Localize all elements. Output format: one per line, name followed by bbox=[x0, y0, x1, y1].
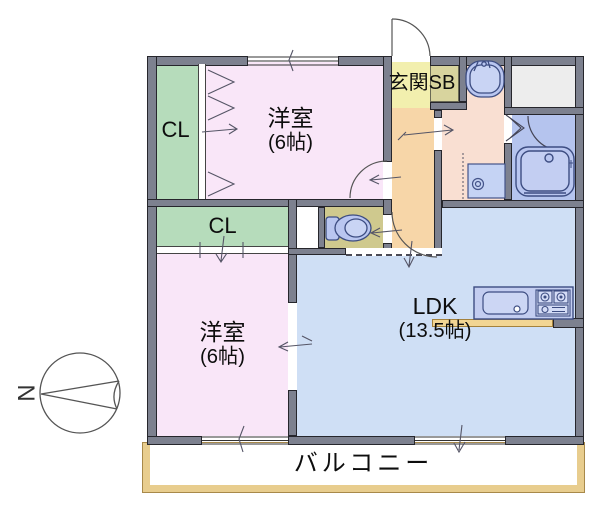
storage-box bbox=[512, 62, 575, 107]
compass-north-label: N bbox=[12, 384, 39, 401]
toilet-room-floor bbox=[318, 207, 383, 250]
bedroom2-ldk-door bbox=[288, 303, 297, 390]
niche-space bbox=[297, 207, 318, 250]
washroom-door-opening bbox=[434, 118, 442, 150]
wall-bottom-mid bbox=[288, 436, 415, 445]
wall-bedroom1-bottom bbox=[147, 199, 392, 207]
bedroom-bottom-size: (6帖) bbox=[157, 346, 288, 369]
label-closet-top: CL bbox=[153, 118, 198, 143]
wall-bedroom2-ldk-b bbox=[288, 390, 297, 436]
toilet-door-opening bbox=[383, 215, 392, 243]
entrance-door bbox=[392, 19, 430, 56]
label-balcony: バルコニー bbox=[143, 451, 584, 478]
ldk-name: LDK bbox=[345, 294, 525, 320]
wall-left bbox=[147, 56, 157, 445]
label-entrance: 玄関SB bbox=[380, 72, 464, 94]
ldk-boundary-dashed bbox=[346, 248, 442, 256]
wall-toilet-bottom bbox=[288, 248, 346, 255]
wall-sanitary-bottom bbox=[442, 200, 584, 208]
bedroom-top-size: (6帖) bbox=[198, 132, 383, 155]
floorplan: N CL 洋室 (6帖) 玄関SB CL 洋室 (6帖) LDK (13.5帖)… bbox=[0, 0, 600, 515]
wall-toilet-left bbox=[318, 207, 325, 248]
bedroom-top-name: 洋室 bbox=[198, 106, 383, 132]
hallway-floor bbox=[392, 108, 434, 256]
washroom-floor bbox=[467, 62, 504, 200]
wall-bottom-left bbox=[147, 436, 202, 445]
wall-below-storage bbox=[504, 107, 584, 115]
wall-bottom-right bbox=[505, 436, 584, 445]
label-closet-middle: CL bbox=[157, 214, 288, 239]
wall-below-shoebox bbox=[430, 102, 467, 110]
bedroom-bottom-name: 洋室 bbox=[157, 320, 288, 346]
washroom-floor-ext bbox=[442, 110, 467, 200]
compass-icon bbox=[40, 353, 120, 433]
bathroom-floor bbox=[512, 115, 575, 200]
wall-hall-right-b bbox=[434, 150, 442, 256]
label-ldk: LDK (13.5帖) bbox=[345, 294, 525, 342]
label-bedroom-top: 洋室 (6帖) bbox=[198, 106, 383, 154]
wall-kitchen-stub bbox=[553, 318, 584, 328]
closet-middle-door bbox=[157, 246, 288, 254]
label-bedroom-bottom: 洋室 (6帖) bbox=[157, 320, 288, 368]
ldk-size: (13.5帖) bbox=[345, 320, 525, 343]
wall-wash-bath-b bbox=[504, 143, 512, 200]
wall-hall-right-a bbox=[434, 110, 442, 118]
wall-toilet-right-a bbox=[383, 199, 392, 215]
